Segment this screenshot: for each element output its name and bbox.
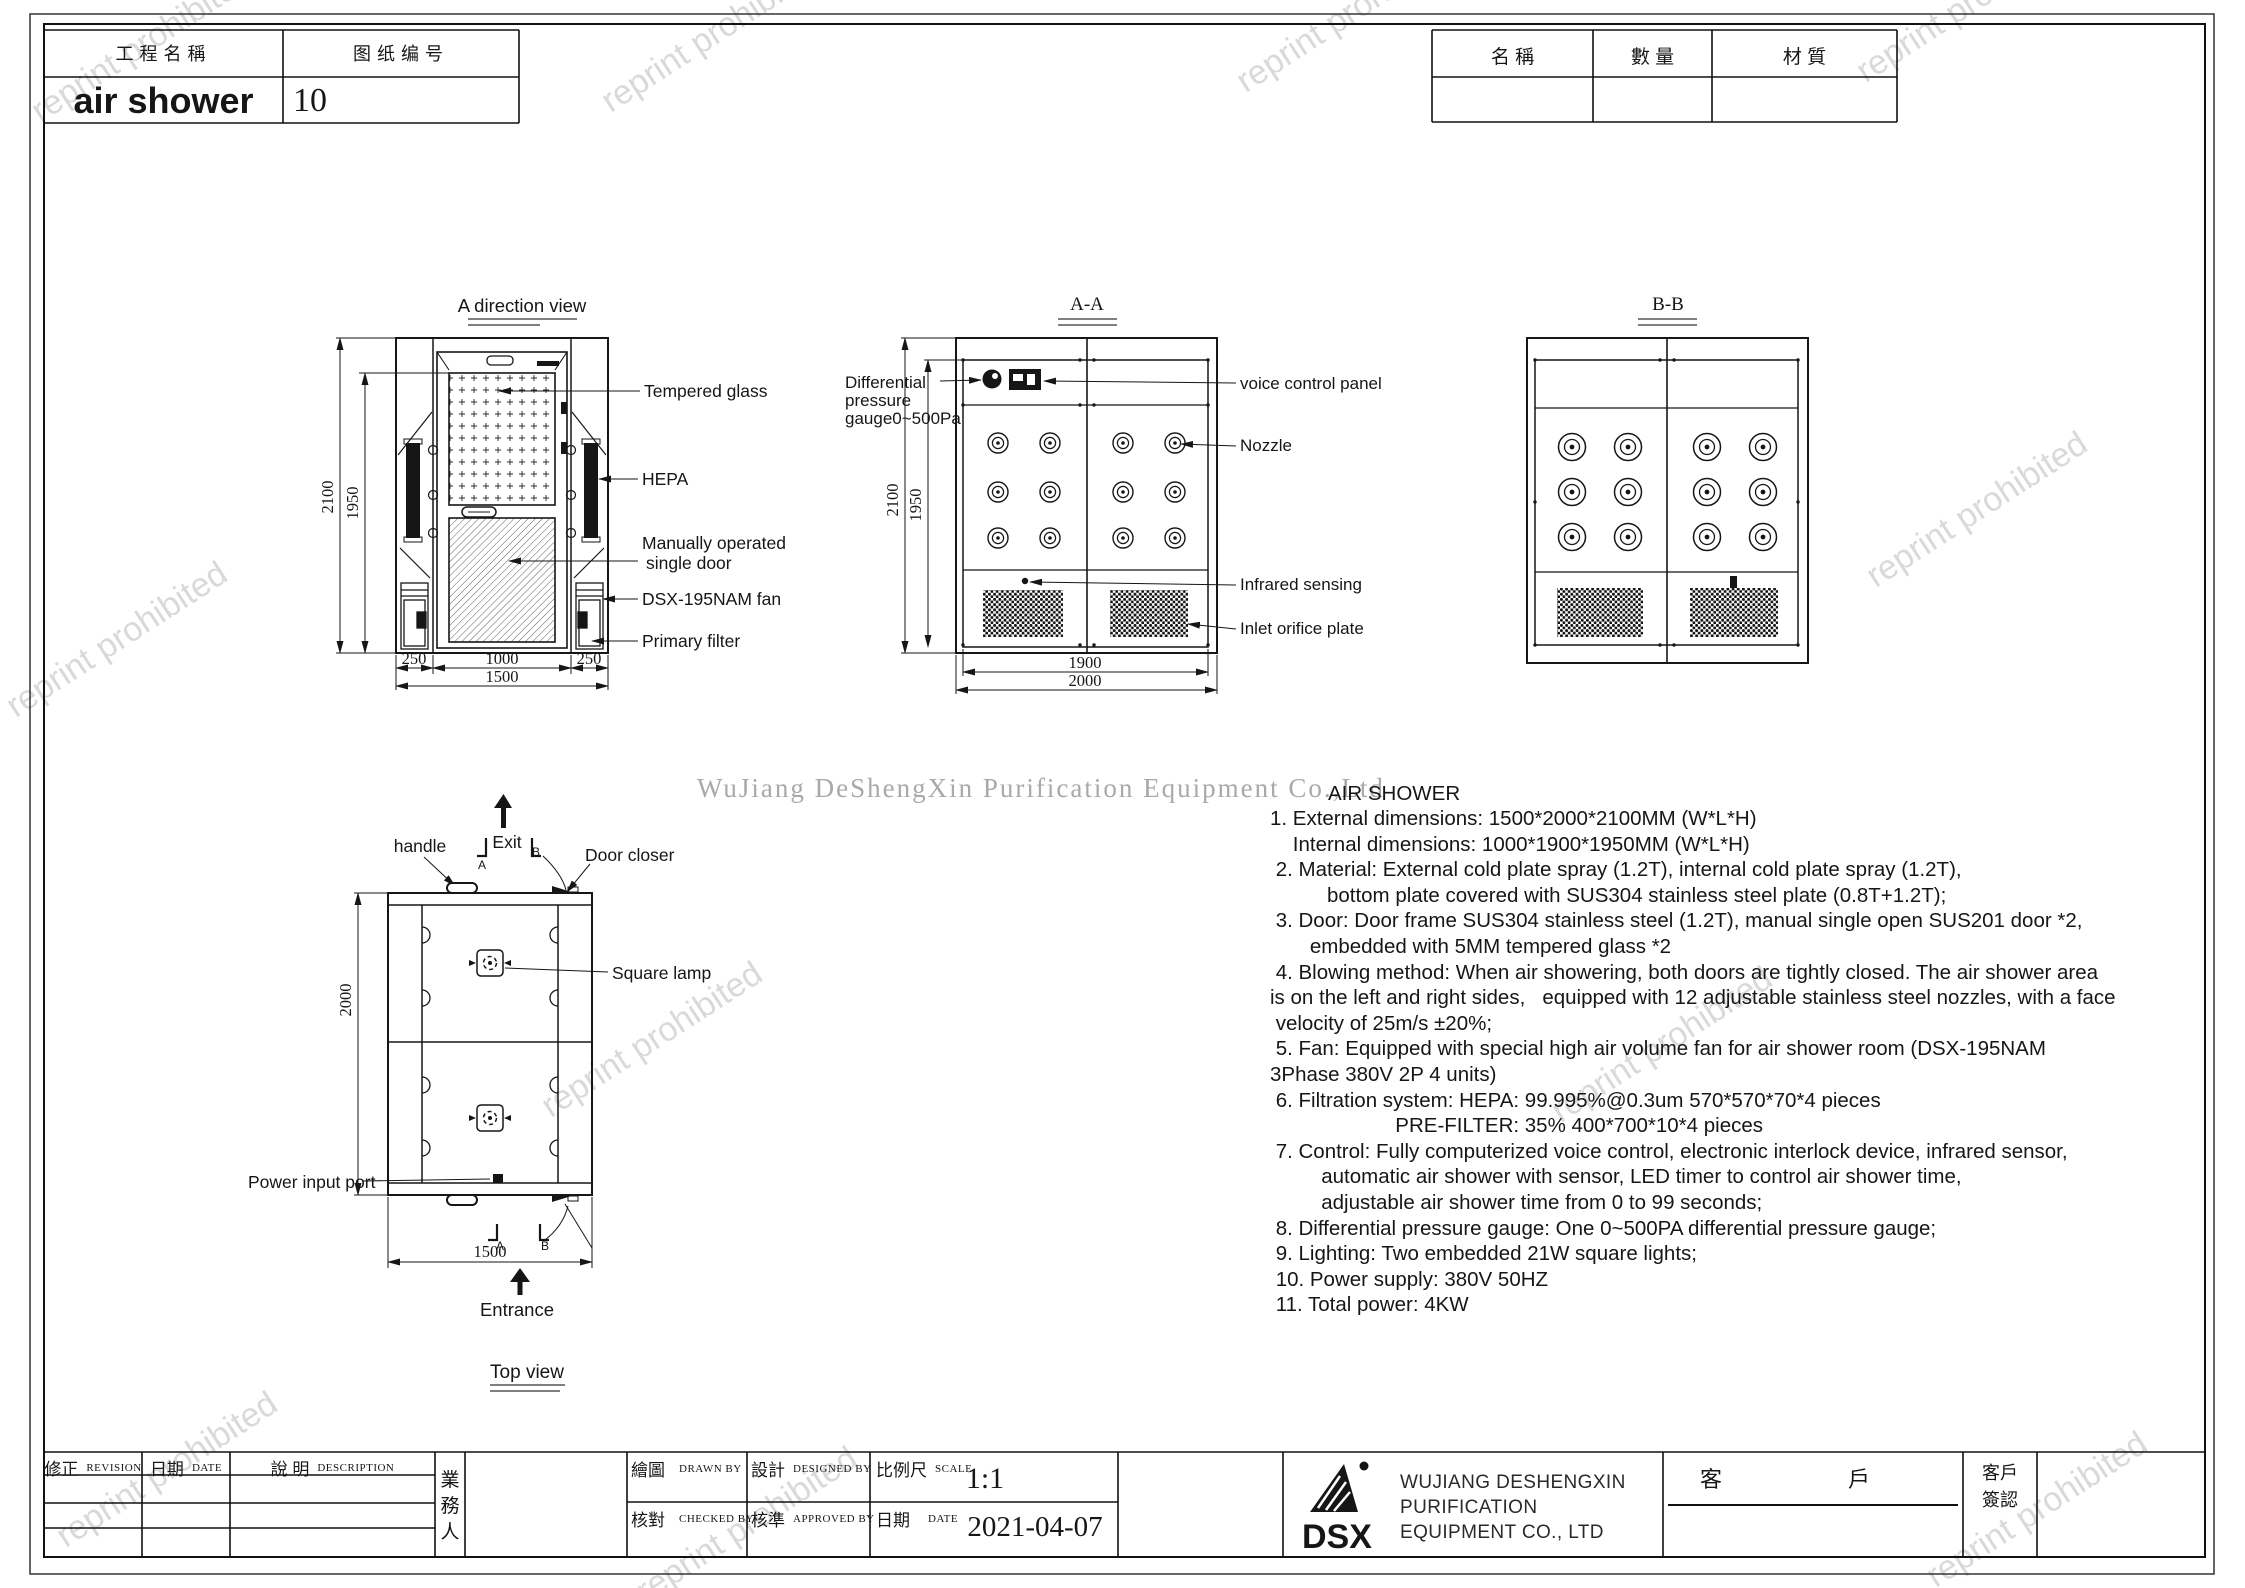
label-square-lamp: Square lamp bbox=[612, 963, 711, 983]
dsx-logo: DSX bbox=[1298, 1456, 1380, 1554]
bb-sensor bbox=[1730, 576, 1737, 588]
spec-line: Internal dimensions: 1000*1900*1950MM (W… bbox=[1270, 832, 2245, 858]
label-exit: Exit bbox=[492, 832, 521, 852]
dim-front-2100: 2100 bbox=[318, 481, 337, 514]
mark-b-bottom: B bbox=[541, 1239, 549, 1253]
dim-aa-2100: 2100 bbox=[883, 484, 902, 517]
dim-front-1500: 1500 bbox=[486, 667, 519, 686]
approved-label-en: APPROVED BY bbox=[793, 1513, 875, 1525]
front-door bbox=[437, 352, 567, 648]
mark-b-top: B bbox=[532, 845, 540, 859]
parts-material-label: 材 質 bbox=[1712, 42, 1897, 69]
exit-arrow bbox=[494, 794, 512, 828]
spec-line: PRE-FILTER: 35% 400*700*10*4 pieces bbox=[1270, 1113, 2245, 1139]
section-bb-title: B-B bbox=[1652, 294, 1684, 315]
dim-top-2000: 2000 bbox=[336, 984, 355, 1017]
project-name-label: 工程名稱 bbox=[44, 40, 283, 66]
dim-front-1950: 1950 bbox=[343, 487, 362, 520]
label-tempered-glass: Tempered glass bbox=[644, 381, 768, 401]
spec-line: velocity of 25m/s ±20%; bbox=[1270, 1011, 2245, 1037]
mark-a-top: A bbox=[478, 858, 486, 872]
date-header: 日期DATE bbox=[142, 1455, 230, 1480]
checked-label-en: CHECKED BY bbox=[679, 1513, 754, 1525]
front-view: A direction view bbox=[318, 295, 786, 690]
label-nozzle: Nozzle bbox=[1240, 436, 1292, 455]
spec-line: 7. Control: Fully computerized voice con… bbox=[1270, 1139, 2245, 1165]
label-gauge-3: gauge0~500Pa bbox=[845, 409, 961, 428]
drawn-label-en: DRAWN BY bbox=[679, 1463, 742, 1475]
spec-line: is on the left and right sides, equipped… bbox=[1270, 985, 2245, 1011]
checked-by-cell: 核對CHECKED BY bbox=[631, 1506, 754, 1531]
sales-person-label: 業 務 人 bbox=[436, 1468, 464, 1546]
label-door-closer: Door closer bbox=[585, 845, 675, 865]
inlet-plate-bb-right bbox=[1690, 588, 1778, 637]
drawing-no-label: 图纸编号 bbox=[283, 40, 519, 66]
designed-label-cn: 設計 bbox=[751, 1456, 785, 1481]
inlet-plate-bb-left bbox=[1557, 588, 1643, 637]
aa-dim-texts: 2100 1950 1900 2000 bbox=[883, 484, 1102, 691]
inlet-plate-right bbox=[1110, 590, 1188, 637]
label-door-1: Manually operated bbox=[642, 533, 786, 553]
description-header: 說 明DESCRIPTION bbox=[230, 1455, 435, 1480]
approved-label-cn: 核準 bbox=[751, 1506, 785, 1531]
label-gauge-2: pressure bbox=[845, 391, 911, 410]
company-line-3: EQUIPMENT CO., LTD bbox=[1400, 1520, 1626, 1545]
dsx-logo-text: DSX bbox=[1302, 1518, 1372, 1554]
drawing-sheet: reprint prohibited reprint prohibited re… bbox=[0, 0, 2245, 1588]
label-hepa: HEPA bbox=[642, 469, 689, 489]
revision-label-cn: 修正 bbox=[44, 1455, 78, 1480]
top-dimensions bbox=[354, 893, 592, 1268]
approved-by-cell: 核準APPROVED BY bbox=[751, 1506, 875, 1531]
spec-line: 3. Door: Door frame SUS304 stainless ste… bbox=[1270, 908, 2245, 934]
date-label-cn: 日期 bbox=[150, 1455, 184, 1480]
dim-aa-1900: 1900 bbox=[1069, 653, 1102, 672]
revision-header: 修正REVISION bbox=[44, 1455, 142, 1480]
customer-char-1: 客 bbox=[1700, 1462, 1722, 1494]
infrared-sensor-dot bbox=[1022, 578, 1028, 584]
drawn-by-cell: 繪圖DRAWN BY bbox=[631, 1456, 742, 1481]
spec-line: 10. Power supply: 380V 50HZ bbox=[1270, 1267, 2245, 1293]
label-inlet-plate: Inlet orifice plate bbox=[1240, 619, 1364, 638]
spec-line: 8. Differential pressure gauge: One 0~50… bbox=[1270, 1216, 2245, 1242]
label-infrared: Infrared sensing bbox=[1240, 575, 1362, 594]
section-marks-bottom bbox=[488, 1224, 549, 1240]
spec-list: 1. External dimensions: 1500*2000*2100MM… bbox=[1270, 806, 2245, 1318]
door-lower-panel bbox=[449, 518, 555, 642]
spec-line: adjustable air shower time from 0 to 99 … bbox=[1270, 1190, 2245, 1216]
spec-line: 6. Filtration system: HEPA: 99.995%@0.3u… bbox=[1270, 1088, 2245, 1114]
spec-line: embedded with 5MM tempered glass *2 bbox=[1270, 934, 2245, 960]
scale-value: 1:1 bbox=[940, 1462, 1030, 1496]
front-view-title: A direction view bbox=[458, 295, 587, 316]
front-labels: Tempered glass HEPA Manually operated si… bbox=[642, 381, 786, 651]
label-door-2: single door bbox=[646, 553, 732, 573]
spec-line: 5. Fan: Equipped with special high air v… bbox=[1270, 1036, 2245, 1062]
label-voice-panel: voice control panel bbox=[1240, 374, 1382, 393]
spec-line: automatic air shower with sensor, LED ti… bbox=[1270, 1164, 2245, 1190]
spec-title: AIR SHOWER bbox=[1328, 782, 1460, 806]
date2-label-cn: 日期 bbox=[876, 1506, 910, 1531]
drawing-canvas: A direction view bbox=[0, 0, 2245, 1588]
parts-qty-label: 數 量 bbox=[1593, 42, 1712, 69]
label-gauge-1: Differential bbox=[845, 373, 926, 392]
square-lamps bbox=[469, 950, 511, 1131]
aa-dimensions bbox=[901, 338, 1217, 694]
label-handle: handle bbox=[394, 836, 447, 856]
description-label-cn: 說 明 bbox=[271, 1455, 310, 1480]
description-label-en: DESCRIPTION bbox=[317, 1462, 394, 1474]
date-value: 2021-04-07 bbox=[950, 1511, 1120, 1544]
date-label-en: DATE bbox=[192, 1462, 222, 1474]
label-entrance: Entrance bbox=[480, 1299, 554, 1320]
entrance-arrow bbox=[510, 1268, 530, 1295]
handle-bottom bbox=[447, 1195, 477, 1205]
drawn-label-cn: 繪圖 bbox=[631, 1456, 665, 1481]
mark-a-bottom: A bbox=[496, 1239, 504, 1253]
spec-line: 3Phase 380V 2P 4 units) bbox=[1270, 1062, 2245, 1088]
label-fan: DSX-195NAM fan bbox=[642, 589, 781, 609]
spec-line: 4. Blowing method: When air showering, b… bbox=[1270, 960, 2245, 986]
spec-line: 9. Lighting: Two embedded 21W square lig… bbox=[1270, 1241, 2245, 1267]
drawing-no-value: 10 bbox=[293, 82, 327, 120]
pressure-gauge-icon bbox=[983, 370, 1002, 389]
company-line-2: PURIFICATION bbox=[1400, 1495, 1626, 1520]
customer-char-2: 戶 bbox=[1848, 1462, 1870, 1494]
designed-label-en: DESIGNED BY bbox=[793, 1463, 872, 1475]
top-view: Exit A B handle Door closer bbox=[248, 794, 711, 1391]
project-name-value: air shower bbox=[44, 80, 283, 122]
checked-label-cn: 核對 bbox=[631, 1506, 665, 1531]
voice-panel-icon bbox=[1009, 369, 1041, 390]
date2-cell: 日期DATE bbox=[876, 1506, 958, 1531]
dim-front-250l: 250 bbox=[402, 649, 427, 668]
spec-line: 11. Total power: 4KW bbox=[1270, 1292, 2245, 1318]
label-power-port: Power input port bbox=[248, 1172, 376, 1192]
dim-aa-1950: 1950 bbox=[906, 489, 925, 522]
customer-sign-label: 客戶 簽認 bbox=[1965, 1460, 2035, 1514]
sheet-border bbox=[30, 14, 2214, 1574]
company-line-1: WUJIANG DESHENGXIN bbox=[1400, 1470, 1626, 1495]
section-aa: A-A bbox=[845, 294, 1382, 694]
tempered-glass-panel bbox=[449, 373, 555, 505]
spec-line: 2. Material: External cold plate spray (… bbox=[1270, 857, 2245, 883]
power-port bbox=[493, 1174, 503, 1183]
company-name: WUJIANG DESHENGXIN PURIFICATION EQUIPMEN… bbox=[1400, 1470, 1626, 1545]
label-primary-filter: Primary filter bbox=[642, 631, 740, 651]
dim-front-250r: 250 bbox=[577, 649, 602, 668]
dim-front-1000: 1000 bbox=[486, 649, 519, 668]
revision-label-en: REVISION bbox=[86, 1462, 141, 1474]
handle-top bbox=[447, 883, 477, 893]
inlet-plate-left bbox=[983, 590, 1063, 637]
top-view-title: Top view bbox=[490, 1362, 564, 1383]
spec-line: 1. External dimensions: 1500*2000*2100MM… bbox=[1270, 806, 2245, 832]
parts-name-label: 名 稱 bbox=[1432, 42, 1593, 69]
designed-by-cell: 設計DESIGNED BY bbox=[751, 1456, 872, 1481]
scale-label-cn: 比例尺 bbox=[876, 1456, 927, 1481]
dim-aa-2000: 2000 bbox=[1069, 671, 1102, 690]
section-bb: B-B bbox=[1527, 294, 1808, 663]
section-aa-title: A-A bbox=[1070, 294, 1104, 315]
spec-line: bottom plate covered with SUS304 stainle… bbox=[1270, 883, 2245, 909]
